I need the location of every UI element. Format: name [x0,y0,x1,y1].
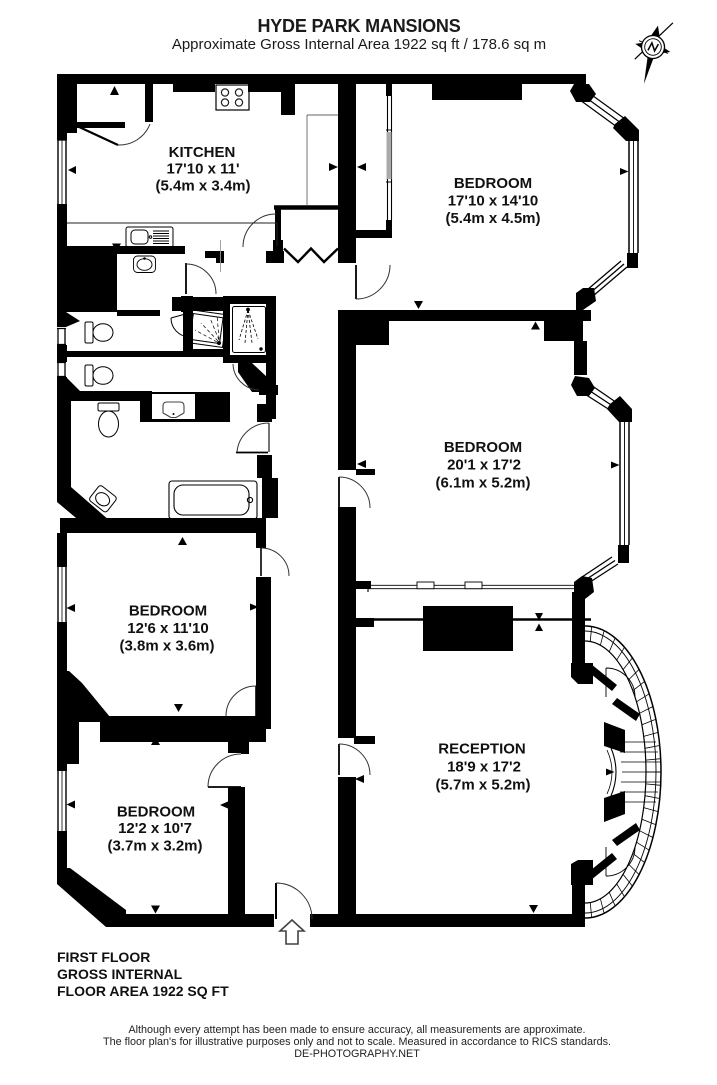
svg-text:RECEPTION: RECEPTION [438,741,526,758]
svg-text:(3.8m x 3.6m): (3.8m x 3.6m) [119,638,214,655]
svg-text:(5.4m x 4.5m): (5.4m x 4.5m) [445,210,540,227]
svg-text:(6.1m x 5.2m): (6.1m x 5.2m) [435,475,530,492]
svg-text:The floor plan's for illustrat: The floor plan's for illustrative purpos… [103,1036,611,1048]
svg-text:18'9 x 17'2: 18'9 x 17'2 [447,759,521,776]
svg-text:FIRST FLOOR: FIRST FLOOR [57,949,150,965]
svg-text:Although every attempt has bee: Although every attempt has been made to … [128,1024,585,1036]
svg-text:(5.7m x 5.2m): (5.7m x 5.2m) [435,777,530,794]
svg-text:20'1 x 17'2: 20'1 x 17'2 [447,457,521,474]
svg-text:12'2 x 10'7: 12'2 x 10'7 [118,820,192,837]
svg-text:BEDROOM: BEDROOM [117,804,195,821]
svg-text:(5.4m x 3.4m): (5.4m x 3.4m) [155,178,250,195]
svg-text:KITCHEN: KITCHEN [169,144,236,161]
svg-text:17'10 x 14'10: 17'10 x 14'10 [448,193,539,210]
svg-text:Approximate Gross Internal Are: Approximate Gross Internal Area 1922 sq … [172,36,546,53]
svg-text:BEDROOM: BEDROOM [444,439,522,456]
svg-text:HYDE PARK MANSIONS: HYDE PARK MANSIONS [257,16,460,36]
svg-text:GROSS INTERNAL: GROSS INTERNAL [57,966,183,982]
svg-text:12'6 x 11'10: 12'6 x 11'10 [127,620,208,637]
svg-text:BEDROOM: BEDROOM [454,175,532,192]
svg-text:17'10 x 11': 17'10 x 11' [166,161,239,178]
svg-text:(3.7m x 3.2m): (3.7m x 3.2m) [107,838,202,855]
svg-text:FLOOR AREA 1922 SQ FT: FLOOR AREA 1922 SQ FT [57,983,229,999]
svg-text:DE-PHOTOGRAPHY.NET: DE-PHOTOGRAPHY.NET [294,1048,420,1060]
svg-text:BEDROOM: BEDROOM [129,603,207,620]
